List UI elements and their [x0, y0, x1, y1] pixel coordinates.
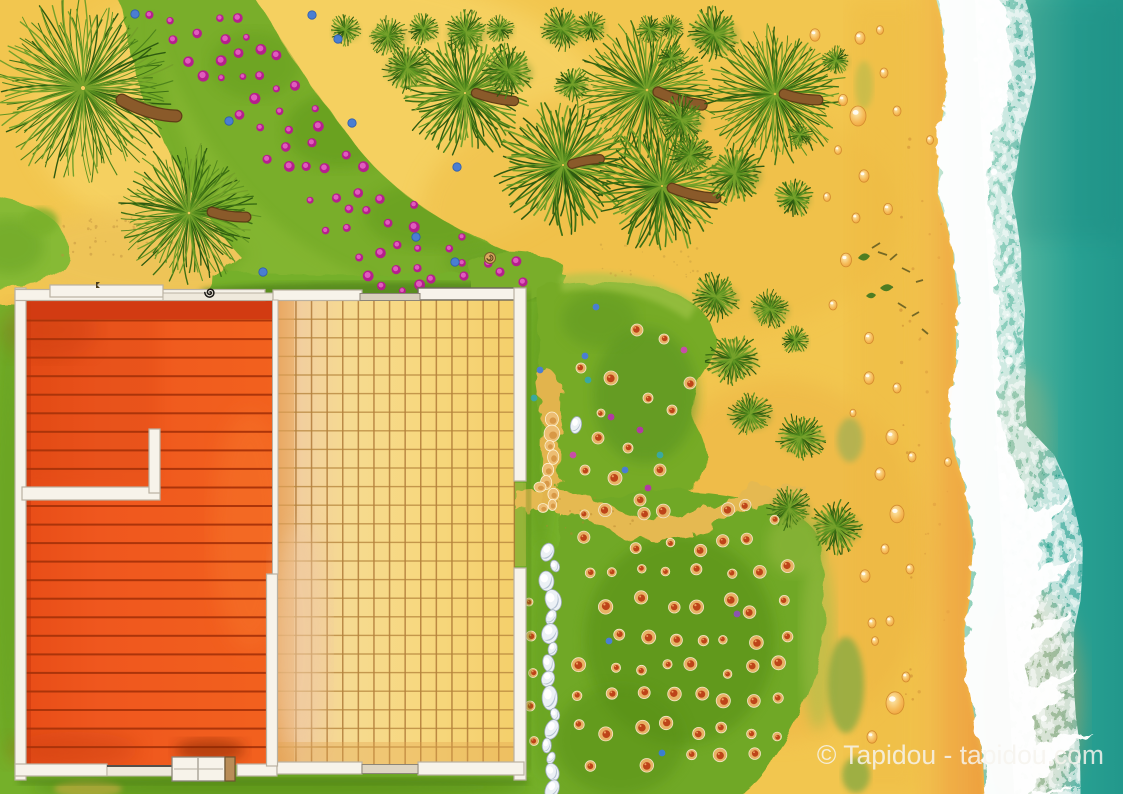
svg-text:© Tapidou - tapidou.com: © Tapidou - tapidou.com: [817, 740, 1104, 770]
